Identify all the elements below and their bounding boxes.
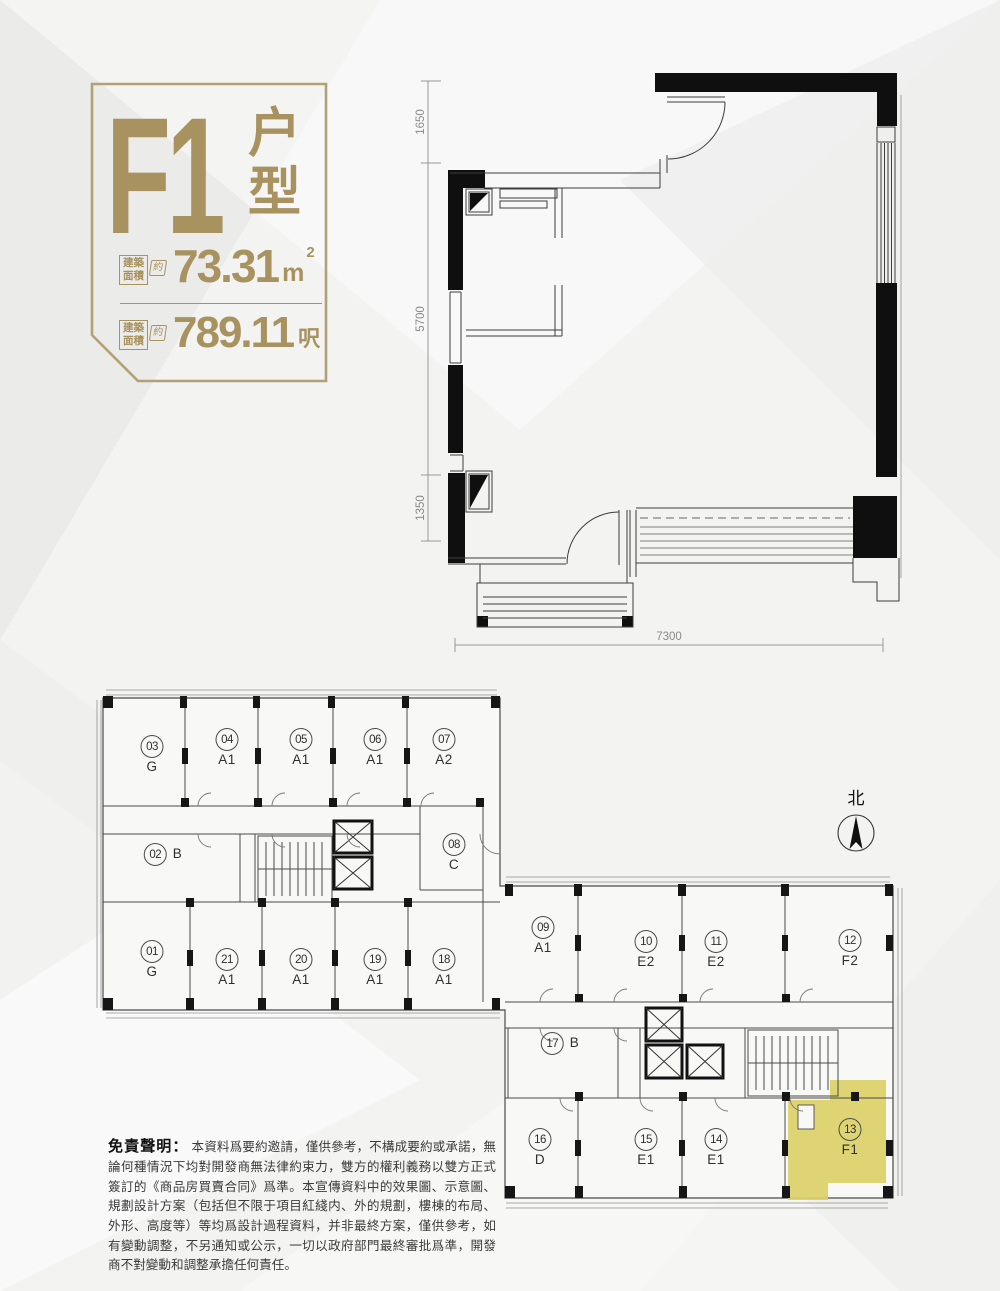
unit-number-badge: 02 [144, 843, 167, 866]
unit-label-02: 02 B [144, 843, 183, 866]
unit-label-04: 04 A1 [216, 728, 239, 768]
unit-type-label: C [449, 857, 459, 873]
unit-label-07: 07 A2 [433, 728, 456, 768]
unit-number-badge: 08 [443, 833, 466, 856]
unit-number-badge: 04 [216, 728, 239, 751]
unit-label-08: 08 C [443, 833, 466, 873]
approx-tag: 約 [149, 325, 167, 341]
unit-label-21: 21 A1 [216, 948, 239, 988]
unit-number-badge: 17 [541, 1032, 564, 1055]
type-char-2: 型 [248, 163, 301, 222]
floor-plan-walls [448, 73, 897, 627]
unit-type-label: F2 [842, 953, 859, 969]
unit-type-label: E1 [637, 1152, 655, 1168]
unit-number-badge: 11 [705, 930, 728, 953]
unit-type-label: A1 [534, 940, 552, 956]
unit-number-badge: 10 [635, 930, 658, 953]
unit-number-badge: 09 [532, 916, 555, 939]
unit-number-badge: 21 [216, 948, 239, 971]
disclaimer-body: 本資料爲要約邀請，僅供參考，不構成要約或承諾，無論何種情況下均對開發商無法律約束… [108, 1140, 496, 1273]
area-unit-sup: 2 [306, 244, 314, 261]
highlight-notch [798, 1105, 814, 1129]
unit-type-label: A1 [218, 752, 236, 768]
unit-type-label: G [146, 964, 157, 980]
unit-label-15: 15 E1 [635, 1128, 658, 1168]
unit-label-03: 03 G [141, 735, 164, 775]
dim-label-5700: 5700 [415, 306, 427, 332]
unit-label-12: 12 F2 [839, 929, 862, 969]
area-row-sqft: 建築 面積 約 789.11 呎 [119, 315, 320, 350]
unit-type-label: E2 [707, 954, 725, 970]
unit-label-05: 05 A1 [290, 728, 313, 768]
approx-tag: 約 [149, 260, 167, 276]
unit-label-20: 20 A1 [290, 948, 313, 988]
unit-type-label: A1 [366, 752, 384, 768]
area-value-sqft: 789.11 [173, 315, 293, 350]
unit-type-label: A1 [366, 972, 384, 988]
unit-type-label: A2 [435, 752, 453, 768]
unit-type-chars: 户 型 [248, 104, 301, 222]
unit-label-09: 09 A1 [532, 916, 555, 956]
unit-type-label: A1 [292, 752, 310, 768]
area-value-sqm: 73.31 [173, 248, 278, 285]
unit-label-17: 17 B [541, 1032, 580, 1055]
unit-number-badge: 12 [839, 929, 862, 952]
unit-number-badge: 07 [433, 728, 456, 751]
unit-number-badge: 06 [364, 728, 387, 751]
area-unit-sqm: m [282, 262, 304, 285]
north-label: 北 [848, 789, 865, 808]
disclaimer-heading: 免責聲明： [108, 1138, 189, 1155]
floor-plan-drawing: 1650 5700 1350 7300 [410, 55, 925, 665]
dim-label-1650: 1650 [415, 109, 427, 135]
floor-plan-lines [448, 97, 899, 627]
unit-number-badge: 19 [364, 948, 387, 971]
area-label-box: 建築 面積 [119, 320, 148, 350]
unit-number-badge: 14 [705, 1128, 728, 1151]
disclaimer-text: 免責聲明：本資料爲要約邀請，僅供參考，不構成要約或承諾，無論何種情況下均對開發商… [108, 1135, 496, 1276]
unit-type-label: A1 [292, 972, 310, 988]
dim-label-1350: 1350 [415, 495, 427, 521]
unit-number-badge: 01 [141, 940, 164, 963]
unit-number-badge: 15 [635, 1128, 658, 1151]
unit-label-18: 18 A1 [433, 948, 456, 988]
area-divider [120, 303, 322, 304]
unit-type-label: E2 [637, 954, 655, 970]
unit-label-06: 06 A1 [364, 728, 387, 768]
unit-number-badge: 13 [839, 1118, 862, 1141]
floor-plan-dimension-lines [421, 81, 883, 652]
unit-type-label: A1 [218, 972, 236, 988]
unit-label-19: 19 A1 [364, 948, 387, 988]
type-char-1: 户 [248, 104, 301, 163]
flyer-page: F1 户 型 建築 面積 約 73.31 m 2 建築 面積 約 789.11 … [0, 0, 1000, 1291]
unit-type-label: E1 [707, 1152, 725, 1168]
unit-number-badge: 16 [529, 1128, 552, 1151]
floor-plan-louvers [640, 527, 853, 555]
unit-label-13-highlighted: 13 F1 [839, 1118, 862, 1158]
area-unit-sqft: 呎 [298, 328, 320, 350]
unit-number-badge: 03 [141, 735, 164, 758]
unit-type-label: B [173, 846, 183, 862]
unit-type-label: G [146, 759, 157, 775]
unit-number-badge: 18 [433, 948, 456, 971]
unit-type-label: F1 [842, 1142, 859, 1158]
area-label-box: 建築 面積 [119, 255, 148, 285]
unit-type-label: B [570, 1035, 580, 1051]
unit-code: F1 [106, 94, 221, 260]
unit-type-label: A1 [435, 972, 453, 988]
unit-type-label: D [535, 1152, 545, 1168]
dim-label-7300: 7300 [656, 631, 682, 643]
unit-title-block: F1 户 型 建築 面積 約 73.31 m 2 建築 面積 約 789.11 … [90, 82, 328, 383]
unit-label-16: 16 D [529, 1128, 552, 1168]
unit-number-badge: 20 [290, 948, 313, 971]
north-indicator: 北 [838, 789, 874, 851]
area-row-sqm: 建築 面積 約 73.31 m 2 [119, 248, 313, 285]
unit-label-10: 10 E2 [635, 930, 658, 970]
unit-label-11: 11 E2 [705, 930, 728, 970]
unit-label-14: 14 E1 [705, 1128, 728, 1168]
unit-label-01: 01 G [141, 940, 164, 980]
north-needle-icon [850, 816, 863, 849]
unit-number-badge: 05 [290, 728, 313, 751]
